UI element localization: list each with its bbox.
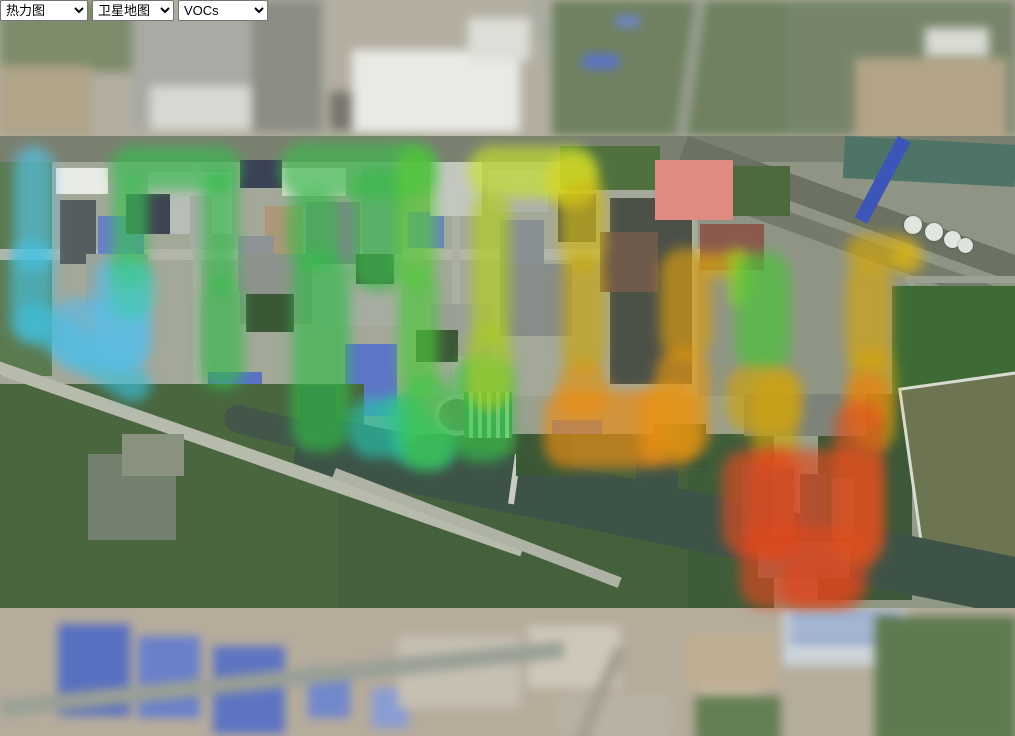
vegetation [516, 434, 572, 476]
building [352, 50, 520, 132]
layer-type-select[interactable]: 热力图 [0, 0, 88, 21]
map-canvas[interactable] [0, 0, 1015, 736]
building [742, 464, 766, 536]
building [408, 212, 444, 248]
tank [904, 216, 922, 234]
building [282, 168, 346, 196]
building [362, 166, 402, 254]
vegetation [246, 294, 294, 332]
building [430, 162, 482, 216]
building [488, 170, 548, 212]
building [600, 232, 658, 292]
satellite-imagery [0, 136, 1015, 608]
building [86, 254, 148, 312]
building [758, 542, 850, 578]
building [468, 18, 530, 60]
building [122, 434, 184, 476]
ground [685, 634, 777, 686]
ground [0, 66, 92, 136]
satellite-imagery [0, 608, 1015, 736]
tank [925, 223, 943, 241]
satellite-tile-bottom-blurred [0, 608, 1015, 736]
building [306, 202, 360, 264]
building [56, 168, 108, 194]
vegetation [695, 696, 781, 736]
building [583, 54, 619, 69]
building [925, 28, 989, 56]
tank [958, 238, 973, 253]
building [126, 194, 170, 234]
vegetation [416, 330, 458, 362]
building [150, 86, 266, 130]
greenhouse [464, 392, 512, 438]
water [636, 454, 678, 492]
building [744, 394, 866, 436]
building [240, 160, 282, 188]
building [655, 160, 733, 220]
vegetation [0, 162, 52, 376]
building [558, 696, 670, 736]
road [905, 276, 1015, 283]
basemap-select[interactable]: 卫星地图 [92, 0, 174, 21]
building [616, 16, 640, 27]
vegetation [875, 616, 1015, 736]
ground [700, 224, 764, 270]
building [500, 264, 572, 336]
vegetation [356, 254, 394, 284]
building [772, 468, 794, 536]
satellite-tile-main [0, 136, 1015, 608]
vegetation [560, 146, 660, 190]
vegetation [730, 166, 790, 216]
building [138, 636, 200, 718]
water [300, 386, 336, 434]
building [558, 194, 596, 242]
ground [855, 58, 1007, 136]
building [190, 196, 212, 248]
building [800, 474, 826, 536]
water [843, 136, 1015, 187]
pollutant-select[interactable]: VOCs [178, 0, 268, 21]
building [832, 478, 854, 538]
